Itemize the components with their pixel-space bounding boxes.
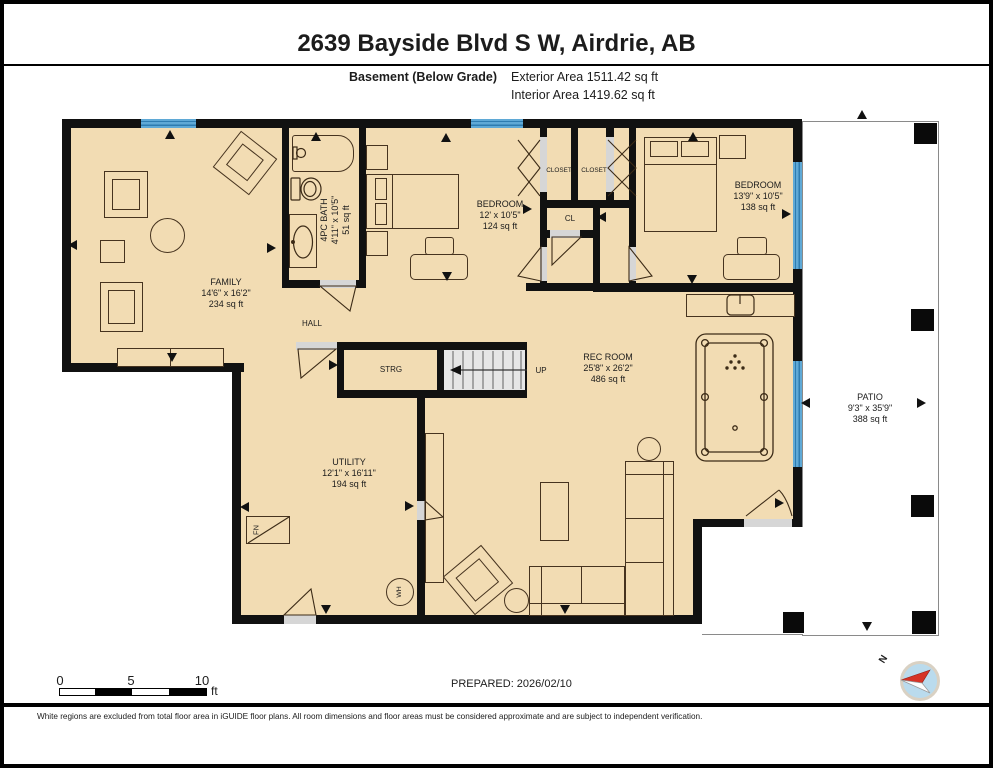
patio-post — [912, 611, 936, 634]
coffee-table — [540, 482, 569, 541]
room-area: 486 sq ft — [583, 373, 633, 384]
room-name: PATIO — [848, 392, 892, 403]
door-opening — [629, 247, 636, 281]
room-label-storage: STRG — [380, 365, 402, 375]
wall — [629, 127, 636, 247]
scale-tick-0: 0 — [56, 673, 63, 688]
room-label-patio: PATIO 9'3" x 35'9" 388 sq ft — [848, 392, 892, 424]
dimension-arrow-icon — [321, 605, 331, 614]
wall — [593, 283, 802, 292]
floorplan-page: 2639 Bayside Blvd S W, Airdrie, AB Basem… — [0, 0, 993, 768]
door-opening — [296, 342, 337, 350]
pillow — [681, 141, 709, 157]
room-dims: 12'1" x 16'11" — [322, 468, 376, 479]
door-opening — [550, 230, 580, 238]
armchair-cushion — [455, 558, 499, 602]
sofa-back-line — [530, 603, 624, 604]
room-name: UTILITY — [322, 457, 376, 468]
room-area: 138 sq ft — [733, 201, 782, 212]
floor-fill — [698, 293, 798, 523]
side-table — [504, 588, 529, 613]
dimension-arrow-icon — [441, 133, 451, 142]
dimension-arrow-icon — [687, 275, 697, 284]
armchair-cushion — [108, 290, 135, 324]
room-label-utility: UTILITY 12'1" x 16'11" 194 sq ft — [322, 457, 376, 489]
sofa-seam — [581, 567, 582, 604]
patio-post — [783, 612, 804, 633]
wall — [540, 200, 629, 208]
room-name: BEDROOM — [733, 180, 782, 191]
room-label-rec-room: REC ROOM 25'8" x 26'2" 486 sq ft — [583, 352, 633, 384]
scale-bar — [59, 688, 207, 696]
bed-fold-line — [392, 175, 393, 228]
room-label-closet-left: CLOSET — [546, 167, 572, 175]
sofa-seam — [626, 562, 664, 563]
sofa-back-line — [663, 462, 664, 615]
room-dims: 13'9" x 10'5" — [733, 191, 782, 202]
compass-north-label: N — [877, 654, 890, 666]
scale-bar-segment — [95, 689, 132, 695]
round-table — [150, 218, 185, 253]
desk — [723, 254, 780, 280]
room-name: REC ROOM — [583, 352, 633, 363]
staircase — [444, 350, 527, 390]
wall — [359, 127, 366, 287]
room-label-hall: HALL — [302, 319, 322, 329]
door-opening — [284, 615, 316, 624]
dimension-arrow-icon — [442, 272, 452, 281]
armchair-cushion — [112, 179, 140, 210]
dimension-arrow-icon — [523, 204, 532, 214]
window — [793, 162, 802, 269]
wall — [232, 363, 241, 624]
nightstand — [719, 135, 746, 159]
door-opening — [744, 519, 792, 527]
dimension-arrow-icon — [782, 209, 791, 219]
wall — [337, 390, 527, 398]
armchair-cushion — [226, 143, 264, 181]
floor-label: Basement (Below Grade) — [349, 70, 497, 84]
wall — [526, 283, 593, 291]
stair-edge — [525, 350, 527, 390]
stairs-up-label: UP — [535, 366, 546, 376]
side-table — [637, 437, 661, 461]
patio-post — [911, 495, 934, 517]
pillow — [375, 178, 387, 200]
sofa-armrest-line — [541, 567, 542, 615]
patio-area — [802, 121, 939, 636]
water-heater-label: WH — [396, 586, 404, 597]
room-name: FAMILY — [201, 277, 250, 288]
interior-area: Interior Area 1419.62 sq ft — [511, 88, 655, 102]
sectional-sofa-horizontal — [529, 566, 625, 616]
sofa-seam — [626, 518, 664, 519]
room-area: 388 sq ft — [848, 413, 892, 424]
disclaimer-text: White regions are excluded from total fl… — [37, 712, 702, 721]
dimension-arrow-icon — [405, 501, 414, 511]
scale-tick-5: 5 — [127, 673, 134, 688]
room-label-bath: 4PC BATH 4'11" x 10'5" 51 sq ft — [319, 196, 351, 245]
room-dims: 14'6" x 16'2" — [201, 288, 250, 299]
dimension-arrow-icon — [240, 502, 249, 512]
dimension-arrow-icon — [857, 110, 867, 119]
room-label-cl: CL — [565, 214, 575, 224]
pillow — [375, 203, 387, 225]
room-area: 194 sq ft — [322, 478, 376, 489]
sofa-armrest-line — [626, 474, 674, 475]
window — [471, 119, 523, 128]
dimension-arrow-icon — [329, 360, 338, 370]
dimension-arrow-icon — [917, 398, 926, 408]
wetbar-counter — [686, 294, 795, 317]
footer-divider — [4, 703, 989, 707]
room-dims: 25'8" x 26'2" — [583, 363, 633, 374]
door-opening — [417, 501, 425, 520]
room-area: 234 sq ft — [201, 298, 250, 309]
dimension-arrow-icon — [167, 353, 177, 362]
door-opening — [320, 280, 356, 288]
dimension-arrow-icon — [862, 622, 872, 631]
patio-post — [911, 309, 934, 331]
room-label-closet-right: CLOSET — [581, 167, 607, 175]
dimension-arrow-icon — [267, 243, 276, 253]
page-title: 2639 Bayside Blvd S W, Airdrie, AB — [297, 30, 695, 58]
dimension-arrow-icon — [560, 605, 570, 614]
bed-fold-line — [645, 164, 716, 165]
room-dims: 4'11" x 10'5" — [330, 196, 341, 245]
exterior-area: Exterior Area 1511.42 sq ft — [511, 70, 658, 84]
scale-unit: ft — [211, 684, 218, 698]
furnace-label: FN — [252, 525, 261, 535]
nightstand — [366, 145, 388, 170]
room-dims: 9'3" x 35'9" — [848, 403, 892, 414]
dimension-arrow-icon — [801, 398, 810, 408]
door-opening — [606, 137, 614, 192]
scale-tick-10: 10 — [195, 673, 209, 688]
desk-chair — [737, 237, 767, 255]
room-area: 124 sq ft — [477, 220, 524, 231]
wall — [693, 519, 702, 624]
wall — [282, 127, 289, 287]
door-opening — [540, 137, 547, 192]
room-label-family: FAMILY 14'6" x 16'2" 234 sq ft — [201, 277, 250, 309]
room-dims: 12' x 10'5" — [477, 210, 524, 221]
room-label-bedroom1: BEDROOM 12' x 10'5" 124 sq ft — [477, 199, 524, 231]
shelf — [425, 433, 444, 583]
compass-icon — [901, 663, 939, 700]
vanity — [289, 214, 317, 268]
pillow — [650, 141, 678, 157]
bathtub — [292, 135, 354, 172]
window — [793, 361, 802, 467]
prepared-date: PREPARED: 2026/02/10 — [451, 678, 572, 690]
room-name: BEDROOM — [477, 199, 524, 210]
wall — [337, 342, 527, 350]
dimension-arrow-icon — [68, 240, 77, 250]
door-opening — [540, 247, 547, 281]
room-label-bedroom2: BEDROOM 13'9" x 10'5" 138 sq ft — [733, 180, 782, 212]
dimension-arrow-icon — [775, 498, 784, 508]
dimension-arrow-icon — [597, 212, 606, 222]
desk — [410, 254, 468, 280]
room-name: 4PC BATH — [319, 196, 330, 245]
window — [141, 119, 196, 128]
room-area: 51 sq ft — [340, 196, 351, 245]
scale-bar-segment — [169, 689, 206, 695]
dimension-arrow-icon — [165, 130, 175, 139]
nightstand — [366, 231, 388, 256]
sectional-sofa-vertical — [625, 461, 674, 616]
dimension-arrow-icon — [311, 132, 321, 141]
desk-chair — [425, 237, 454, 255]
patio-post — [914, 123, 937, 144]
title-divider — [4, 64, 989, 66]
side-table — [100, 240, 125, 263]
dimension-arrow-icon — [688, 132, 698, 141]
